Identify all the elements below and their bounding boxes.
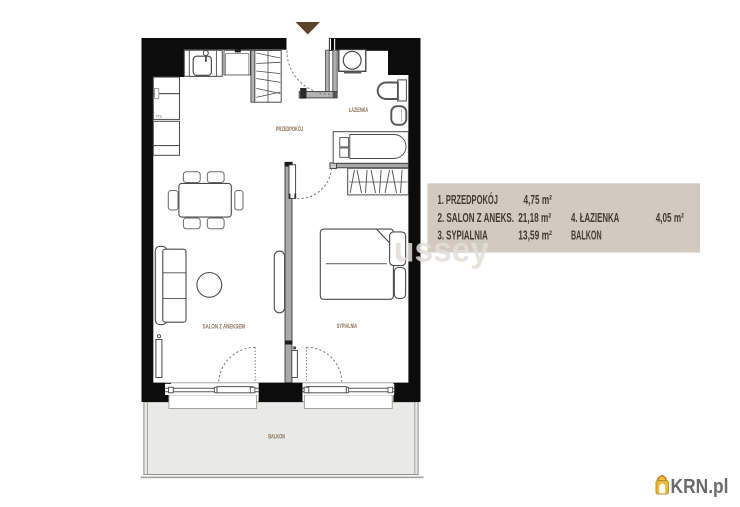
svg-text:PRZEDPOKÓJ: PRZEDPOKÓJ: [276, 125, 303, 133]
svg-text:ŁAZIENKA: ŁAZIENKA: [349, 108, 369, 114]
svg-text:SYPIALNIA: SYPIALNIA: [337, 324, 358, 330]
svg-text:21,18 m²: 21,18 m²: [518, 210, 551, 225]
svg-text:KRN.pl: KRN.pl: [671, 475, 729, 498]
svg-text:13,59 m²: 13,59 m²: [518, 228, 552, 243]
svg-text:BALKON: BALKON: [571, 228, 602, 243]
svg-text:ussey: ussey: [394, 231, 490, 270]
svg-text:SALON Z ANEKSEM: SALON Z ANEKSEM: [203, 325, 245, 331]
svg-text:4,05 m²: 4,05 m²: [656, 210, 685, 225]
svg-text:BALKON: BALKON: [268, 435, 285, 441]
svg-text:4. ŁAZIENKA: 4. ŁAZIENKA: [571, 210, 620, 225]
svg-text:2. SALON Z ANEKS.: 2. SALON Z ANEKS.: [438, 210, 515, 225]
svg-text:1. PRZEDPOKÓJ: 1. PRZEDPOKÓJ: [438, 192, 499, 207]
svg-text:Pra: Pra: [156, 114, 161, 118]
svg-text:4,75 m²: 4,75 m²: [524, 192, 553, 207]
